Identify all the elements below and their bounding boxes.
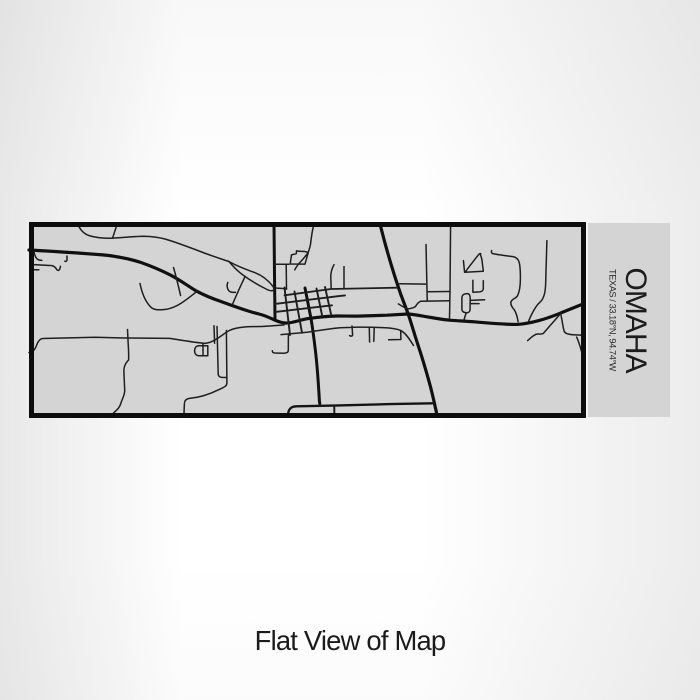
svg-text:TEXAS / 33.18°N, 94.74°W: TEXAS / 33.18°N, 94.74°W bbox=[607, 269, 617, 372]
svg-text:Flat View of Map: Flat View of Map bbox=[255, 625, 446, 656]
svg-text:OMAHA: OMAHA bbox=[619, 267, 652, 373]
